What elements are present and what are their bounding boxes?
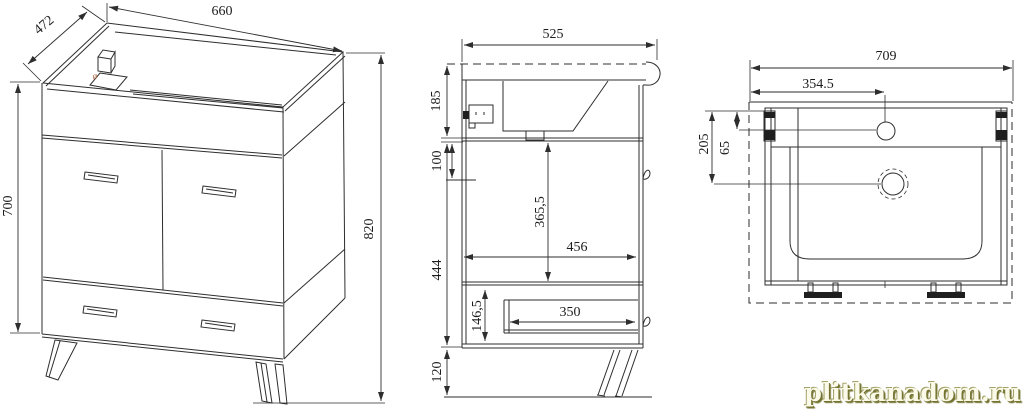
dim-label-820: 820 (362, 219, 377, 240)
front-extension-lines (10, 3, 385, 403)
dim-label-146: 146,5 (470, 300, 485, 332)
dim-label-100: 100 (430, 151, 445, 172)
cabinet-legs-side (597, 350, 638, 397)
drain-connector (463, 111, 469, 119)
dim-label-444: 444 (430, 260, 445, 281)
countertop-overhang-dashed (749, 102, 1012, 303)
dim-label-350: 350 (560, 305, 581, 320)
countertop-bullnose (643, 62, 660, 85)
dim-label-120: 120 (430, 362, 445, 383)
technical-drawing-canvas: 660 472 700 820 ø 525 185 100 365,5 444 … (0, 0, 1023, 409)
faucet-block (90, 50, 127, 90)
dim-label-365: 365,5 (533, 196, 548, 228)
side-view: 525 185 100 365,5 444 456 146,5 350 120 (429, 27, 660, 397)
dim-label-456: 456 (567, 240, 588, 255)
dim-line-472 (28, 12, 87, 64)
drawing-sheet: 660 472 700 820 ø 525 185 100 365,5 444 … (0, 0, 1023, 409)
drain-hole (882, 173, 904, 195)
siphon-box (469, 105, 493, 128)
dim-label-354: 354.5 (802, 77, 834, 92)
leg-mount-bars (804, 292, 965, 298)
leg-mount-stubs (808, 283, 961, 292)
dim-label-525: 525 (543, 27, 564, 42)
hinge-plate-fills (764, 112, 1007, 140)
top-view: 709 354.5 205 65 (697, 49, 1013, 303)
sink-basin-outline (790, 147, 982, 259)
sink-basin-profile (503, 81, 608, 140)
hinge-plates (764, 111, 1007, 141)
dim-label-185: 185 (429, 91, 444, 112)
handle-profiles-side (643, 170, 650, 326)
cabinet-front-linework (42, 23, 345, 362)
dim-label-660: 660 (212, 4, 233, 19)
faucet-hole (877, 122, 895, 140)
dim-label-472: 472 (31, 13, 57, 38)
front-view: 660 472 700 820 ø (1, 3, 385, 404)
site-watermark: plitkanadom.ru (804, 378, 1021, 407)
dim-label-65: 65 (718, 141, 733, 155)
dim-label-205: 205 (697, 134, 712, 155)
dim-label-700: 700 (1, 196, 16, 217)
top-extension-lines (705, 60, 1013, 288)
dim-label-709: 709 (876, 49, 897, 64)
diameter-mark: ø (93, 71, 98, 81)
door-drawer-handles (83, 172, 236, 331)
